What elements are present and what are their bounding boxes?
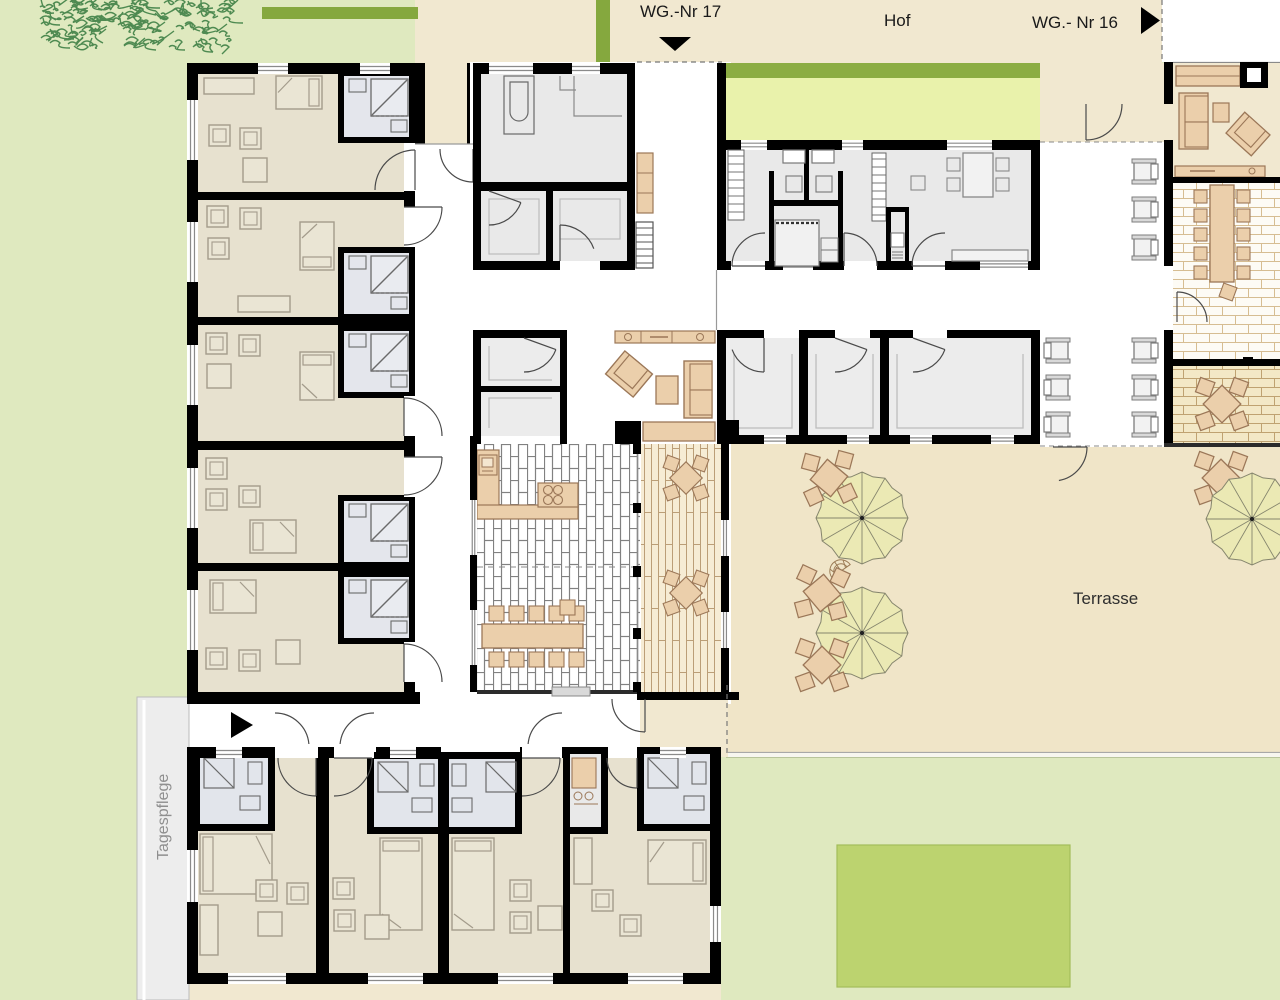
- svg-text:Tagespflege: Tagespflege: [155, 774, 172, 860]
- svg-text:Hof: Hof: [884, 11, 911, 30]
- svg-text:WG.- Nr 16: WG.- Nr 16: [1032, 13, 1118, 32]
- svg-text:Terrasse: Terrasse: [1073, 589, 1138, 608]
- svg-text:WG.-Nr 17: WG.-Nr 17: [640, 2, 721, 21]
